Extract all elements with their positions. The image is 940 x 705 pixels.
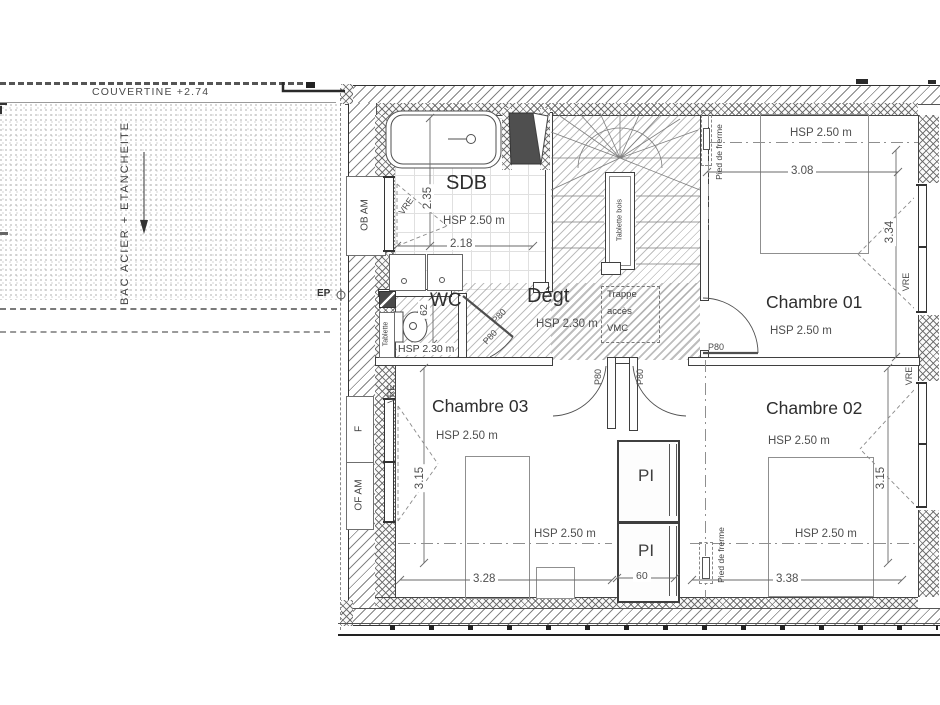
ch1-truss-axis-h bbox=[707, 142, 918, 143]
ch1-vre-label: VRE bbox=[901, 273, 911, 292]
ch1-window-frame bbox=[918, 186, 927, 312]
ch1-hsp: HSP 2.50 m bbox=[770, 325, 832, 337]
ch3-hsp-top: HSP 2.50 m bbox=[436, 430, 498, 442]
ch1-window-cap-top bbox=[916, 184, 927, 186]
ch2-window-cap-bottom bbox=[916, 506, 927, 508]
sdb-window-cap-top bbox=[383, 176, 395, 178]
ch1-dim-depth: 3.34 bbox=[884, 218, 896, 246]
wc-name: WC bbox=[430, 290, 462, 312]
corridor-door-right-label: P80 bbox=[635, 369, 645, 385]
stair-shelf-label: Tablette bois bbox=[615, 199, 624, 241]
floorplan-linework bbox=[0, 0, 940, 705]
ch1-name: Chambre 01 bbox=[766, 292, 862, 313]
ch3-window-label-f: F bbox=[354, 426, 365, 432]
ch2-vre-label: VRE bbox=[904, 367, 914, 386]
sdb-name: SDB bbox=[446, 172, 487, 195]
wc-shelf-label: Tablette bbox=[383, 322, 390, 347]
pi-top-label: PI bbox=[638, 466, 654, 486]
ch2-hsp-top: HSP 2.50 m bbox=[768, 435, 830, 447]
roof-ep-label: EP bbox=[317, 288, 330, 299]
ch1-dim-width: 3.08 bbox=[788, 165, 816, 177]
ch3-window-cap-bottom bbox=[383, 521, 395, 523]
sdb-window-label: OB AM bbox=[360, 199, 371, 231]
vmc-line2: accès bbox=[607, 306, 632, 317]
ch1-truss-label: Pied de frerme bbox=[714, 124, 724, 180]
floor-plan-canvas: COUVERTINE +2.74 BAC ACIER + ETANCHEITE … bbox=[0, 0, 940, 705]
ch3-hsp: HSP 2.50 m bbox=[532, 528, 598, 540]
ch3-window-cap-mid bbox=[383, 461, 395, 463]
vmc-line1: Trappe bbox=[607, 289, 637, 300]
sdb-window-frame bbox=[384, 178, 394, 252]
sdb-dim-width: 2.18 bbox=[447, 238, 475, 250]
corridor-door-left-label: P80 bbox=[593, 369, 603, 385]
ch1-window-sash-mid bbox=[918, 246, 926, 248]
ch3-dim-width: 3.28 bbox=[470, 573, 498, 585]
ch2-truss-label: Pied de frerme bbox=[716, 527, 726, 583]
roof-couvertine-label: COUVERTINE +2.74 bbox=[92, 86, 209, 98]
sdb-window-cap-bottom bbox=[383, 250, 395, 252]
ch2-hsp: HSP 2.50 m bbox=[793, 528, 859, 540]
ch2-window-frame bbox=[918, 384, 927, 507]
ch3-dim-depth: 3.15 bbox=[414, 464, 426, 492]
vmc-line3: VMC bbox=[607, 323, 628, 334]
ch2-window-sash-mid bbox=[918, 443, 926, 445]
roof-surface-label: BAC ACIER + ETANCHEITE bbox=[119, 121, 131, 305]
degt-hsp: HSP 2.30 m bbox=[536, 318, 598, 330]
ch3-vre-label: VRE bbox=[386, 385, 396, 404]
wc-hsp: HSP 2.30 m bbox=[397, 343, 455, 355]
ch1-door-label: P80 bbox=[708, 342, 724, 352]
sdb-hsp: HSP 2.50 m bbox=[443, 215, 505, 227]
ch3-window-label-of: OF AM bbox=[354, 479, 365, 510]
ch1-window-cap-bottom bbox=[916, 311, 927, 313]
degt-name: Dégt bbox=[527, 285, 569, 308]
ch3-truss-axis-h bbox=[398, 543, 612, 544]
sdb-dim-depth: 2.35 bbox=[422, 184, 434, 212]
ch1-truss-post bbox=[703, 128, 710, 150]
pi-dim: 60 bbox=[633, 570, 651, 582]
wc-dim: 62 bbox=[418, 301, 430, 319]
ch2-name: Chambre 02 bbox=[766, 398, 862, 419]
pi-bottom-label: PI bbox=[638, 541, 654, 561]
ch2-truss-post bbox=[702, 557, 710, 579]
ch2-window-cap-top bbox=[916, 382, 927, 384]
ch3-name: Chambre 03 bbox=[432, 396, 528, 417]
ch1-hsp-top: HSP 2.50 m bbox=[790, 127, 852, 139]
ch2-dim-depth: 3.15 bbox=[875, 464, 887, 492]
ch2-dim-width: 3.38 bbox=[773, 573, 801, 585]
